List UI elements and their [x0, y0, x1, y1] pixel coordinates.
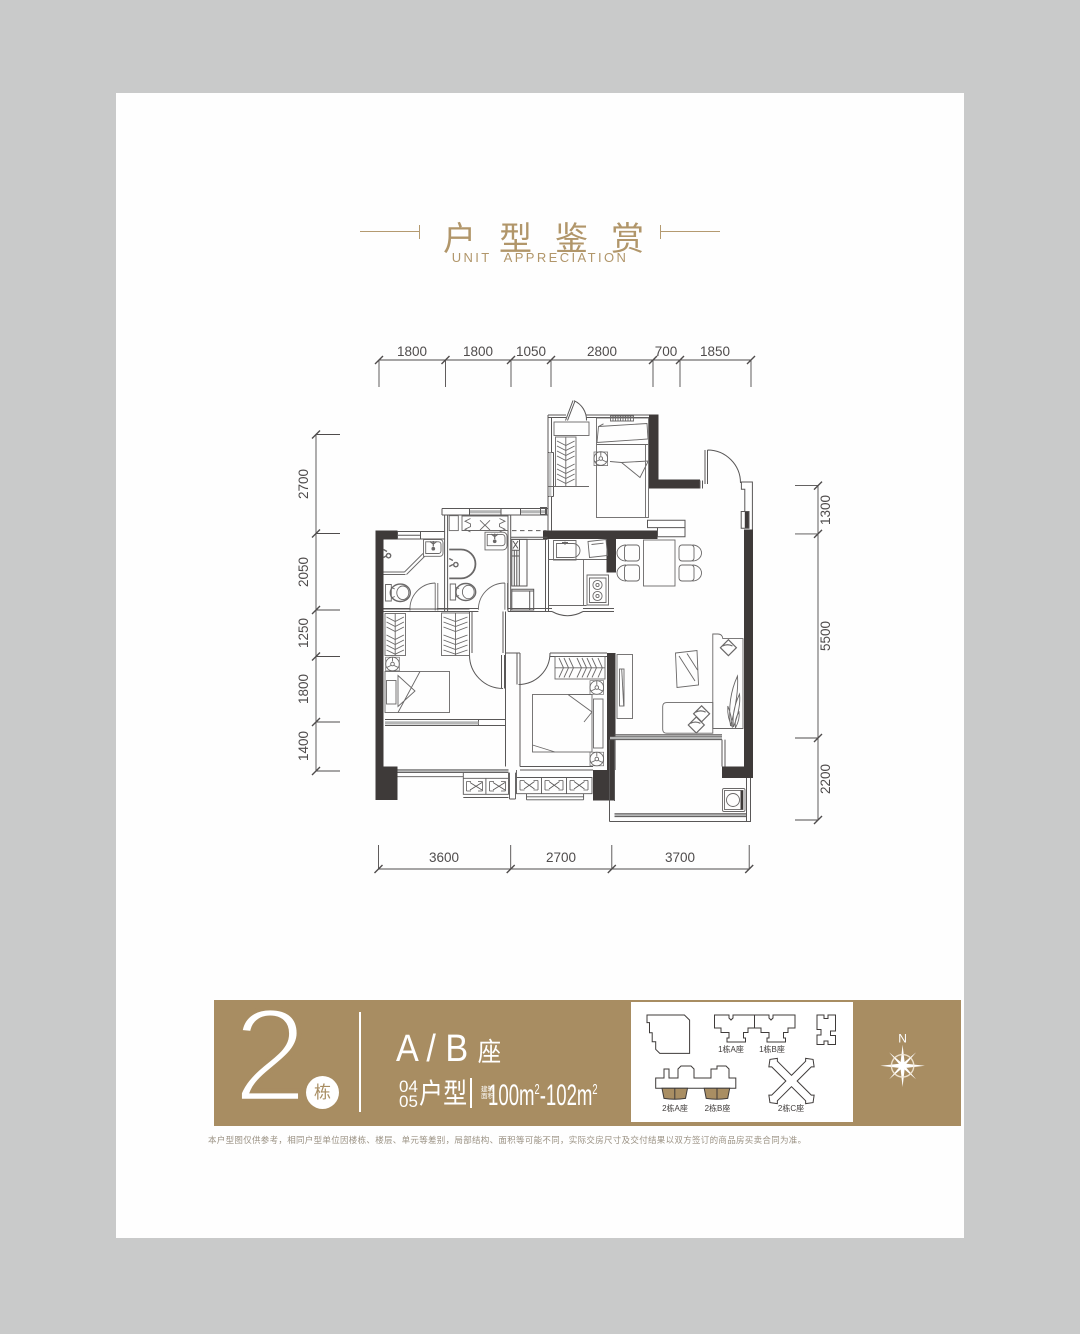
svg-text:1800: 1800 [463, 344, 493, 359]
svg-text:1800: 1800 [397, 344, 427, 359]
svg-text:1800: 1800 [296, 674, 311, 704]
svg-text:2栋C座: 2栋C座 [778, 1103, 804, 1113]
svg-text:1850: 1850 [700, 344, 730, 359]
svg-text:1050: 1050 [516, 344, 546, 359]
svg-text:5500: 5500 [818, 621, 833, 651]
svg-text:2200: 2200 [818, 764, 833, 794]
svg-text:2栋A座: 2栋A座 [662, 1103, 688, 1113]
svg-text:1栋A座: 1栋A座 [718, 1044, 744, 1054]
svg-text:2700: 2700 [546, 850, 576, 865]
svg-text:2700: 2700 [296, 469, 311, 499]
svg-text:3600: 3600 [429, 850, 459, 865]
svg-text:1栋B座: 1栋B座 [759, 1044, 785, 1054]
svg-text:N: N [898, 1032, 907, 1046]
svg-text:2800: 2800 [587, 344, 617, 359]
svg-text:3700: 3700 [665, 850, 695, 865]
svg-text:1250: 1250 [296, 618, 311, 648]
svg-text:1300: 1300 [818, 495, 833, 525]
svg-text:2050: 2050 [296, 557, 311, 587]
svg-text:1400: 1400 [296, 731, 311, 761]
svg-text:2栋B座: 2栋B座 [705, 1103, 731, 1113]
svg-text:700: 700 [655, 344, 678, 359]
